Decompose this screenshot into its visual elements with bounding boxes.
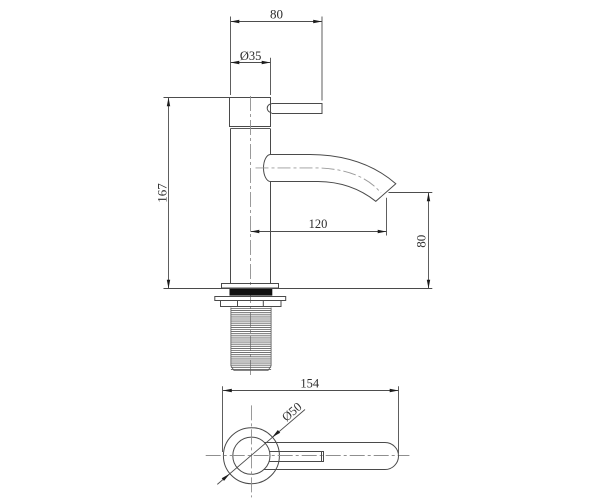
svg-text:80: 80 <box>270 6 283 21</box>
svg-text:154: 154 <box>300 377 320 391</box>
svg-text:120: 120 <box>309 217 328 231</box>
svg-text:Ø35: Ø35 <box>240 49 262 63</box>
svg-text:80: 80 <box>414 235 429 248</box>
svg-text:Ø50: Ø50 <box>279 400 304 425</box>
svg-text:167: 167 <box>155 183 170 203</box>
